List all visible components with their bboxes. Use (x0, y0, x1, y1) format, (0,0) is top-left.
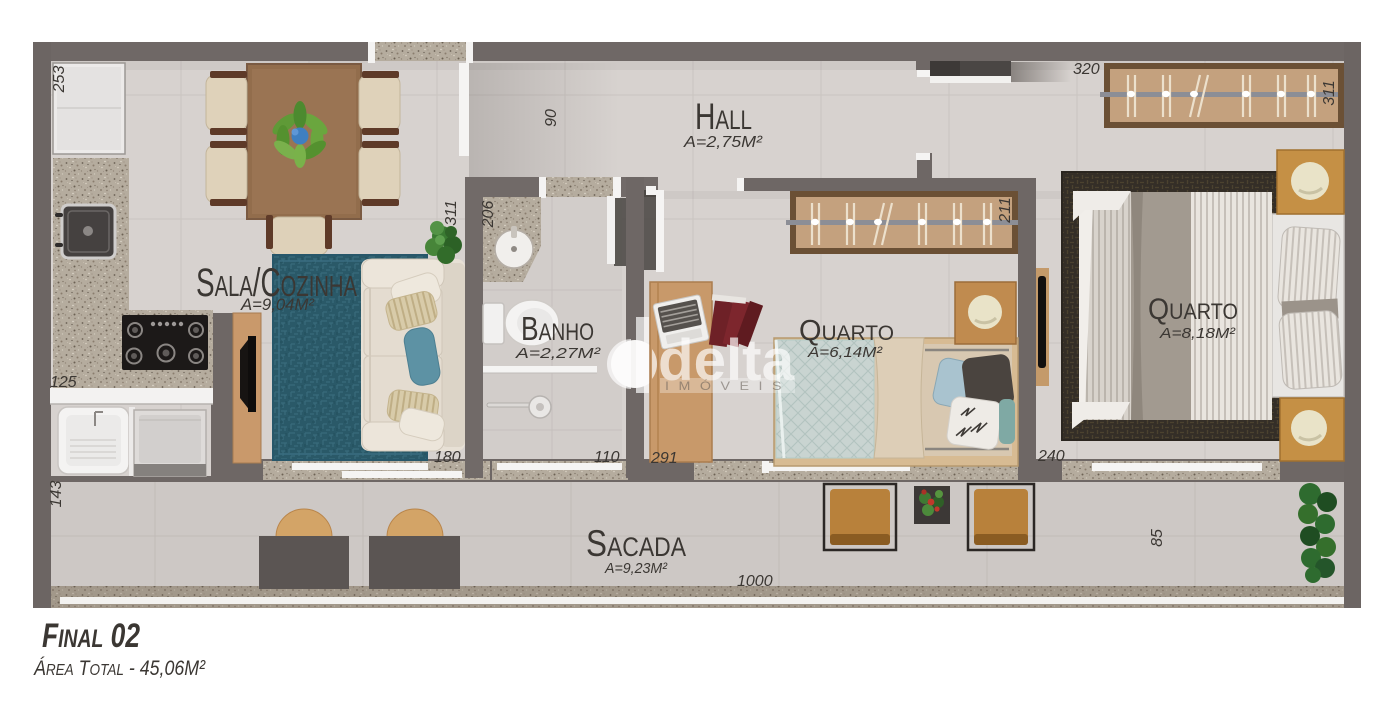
svg-text:110: 110 (594, 449, 620, 466)
svg-text:A=8,18M²: A=8,18M² (1159, 325, 1236, 342)
svg-text:240: 240 (1037, 448, 1065, 465)
svg-text:A=9,23M²: A=9,23M² (604, 560, 668, 577)
svg-text:311: 311 (443, 200, 460, 226)
svg-text:IMÓVEIS: IMÓVEIS (665, 378, 791, 393)
svg-text:143: 143 (48, 481, 65, 508)
svg-text:253: 253 (51, 66, 68, 94)
svg-text:125: 125 (50, 374, 77, 391)
svg-text:1000: 1000 (737, 573, 773, 590)
svg-text:A=2,27M²: A=2,27M² (515, 345, 602, 362)
svg-text:211: 211 (997, 197, 1014, 224)
svg-text:291: 291 (650, 450, 678, 467)
svg-text:85: 85 (1149, 529, 1166, 547)
svg-text:A=9,04M²: A=9,04M² (240, 295, 315, 314)
svg-text:206: 206 (480, 201, 497, 229)
svg-text:90: 90 (543, 109, 560, 127)
svg-text:A=6,14M²: A=6,14M² (807, 344, 883, 361)
svg-text:311: 311 (1321, 80, 1338, 106)
svg-text:A=2,75M²: A=2,75M² (683, 134, 763, 151)
svg-text:180: 180 (434, 449, 461, 466)
svg-text:320: 320 (1073, 61, 1100, 78)
